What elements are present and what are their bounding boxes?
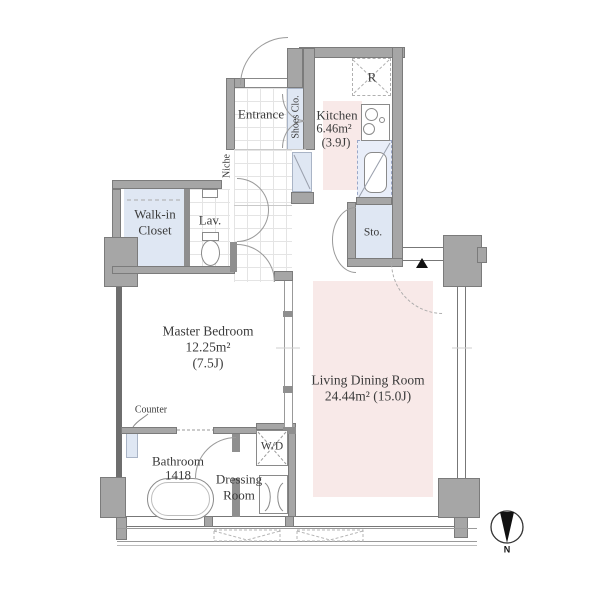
wall-top-left [112,180,222,189]
wall-bedroom-door-stub [274,271,293,281]
shoes-closet-label: Shoes Clo. [290,95,303,138]
walk-in-closet-label-1: Walk-in [134,208,176,221]
stove-burner-1 [365,108,378,121]
entrance-label: Entrance [238,108,284,121]
counter-label: Counter [135,404,167,417]
sliding-door-panel-3 [284,393,293,427]
wall-bedliv-stub-2 [283,386,293,393]
balcony-window-pattern-1 [214,530,280,541]
window-stub-1 [204,516,213,527]
dressing-room-label-1: Dressing [216,473,262,486]
stove-burner-2 [363,123,375,135]
pillar-left-upper [104,237,138,287]
wall-lav-right [230,242,237,272]
living-door-arc-lower [332,240,356,273]
wall-bedroom-left [116,287,122,477]
kitchen-label: Kitchen [316,109,357,122]
balcony-window-pattern-2 [297,530,363,541]
compass-circle [491,511,523,543]
wall-entrance-left [226,78,235,150]
bathtub-inner [151,482,210,516]
pillar-right-upper-notch [477,247,487,263]
wall-left-upper [112,189,121,240]
wall-entrance-door-right [287,48,303,88]
master-bedroom-area-m2: 12.25m² [186,341,231,354]
wall-storage-top [356,197,392,205]
sliding-door-panel-2 [284,317,293,386]
dressing-room-label-2: Room [223,489,255,502]
wall-dressing-right [288,427,296,517]
pillar-right-lower [438,478,480,518]
lavatory-shelf [202,189,218,198]
master-bedroom-label: Master Bedroom [162,325,253,338]
storage-label: Sto. [364,227,382,240]
refrigerator-label: R [368,71,377,84]
lavatory-label: Lav. [199,214,222,227]
pillar-left-lower [100,477,126,518]
balcony-rail-2 [117,541,477,542]
east-window-wall [457,287,466,478]
wall-kitchen-right [392,47,403,267]
bathroom-label: Bathroom [152,455,204,468]
vanity [259,475,288,514]
entrance-door-arc [240,37,288,85]
bathroom-size-label: 1418 [165,469,191,482]
entrance-step-line [234,149,306,150]
sliding-door-panel-1 [284,281,293,311]
wall-closet-lav-divider [184,189,190,266]
balcony-rail-1 [117,528,477,529]
stove-burner-3 [379,117,385,123]
hall-cabinet [292,152,312,192]
kitchen-area-m2: 6.46m² [316,123,351,136]
washer-dryer-label: W/D [261,441,283,454]
wall-closet-lav-bottom [112,266,235,274]
wall-under-hall-cabinet [291,192,314,204]
floor-plan: Entrance Shoes Clo. Niche Kitchen 6.46m²… [0,0,603,606]
niche-label: Niche [221,154,234,178]
wall-shoes-kitchen [303,48,315,150]
master-bedroom-area-jo: (7.5J) [192,357,223,370]
living-dining-area: 24.44m² (15.0J) [325,390,411,403]
compass-needle-icon [500,512,514,543]
living-dining-label: Living Dining Room [311,374,424,387]
toilet-bowl [201,240,220,266]
kitchen-sink [364,152,387,193]
wall-bath-top-right [213,427,258,434]
service-balcony-opening [402,247,443,261]
kitchen-area-jo: (3.9J) [322,137,351,150]
window-stub-2 [285,516,294,527]
balcony-rail-3 [117,545,477,546]
compass-north-label: N [504,544,511,557]
walk-in-closet-label-2: Closet [138,224,171,237]
wall-bath-top-left [121,427,177,434]
living-door-arc-upper [332,207,356,240]
